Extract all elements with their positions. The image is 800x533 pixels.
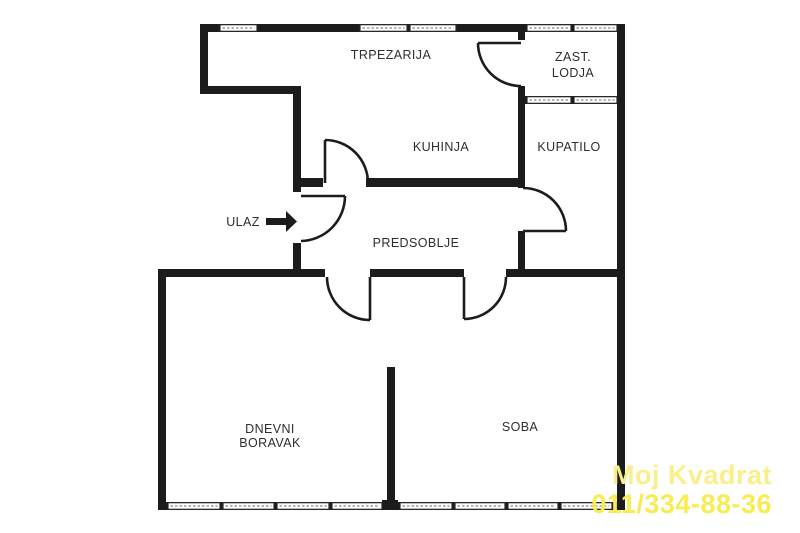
wall-segment xyxy=(387,367,395,510)
entrance-arrow-icon xyxy=(266,211,297,232)
door-dnevni-boravak-swing-arc xyxy=(327,277,370,320)
room-label-zast-lodja-line1: ZAST. xyxy=(555,50,591,64)
room-label-kupatilo: KUPATILO xyxy=(537,140,600,154)
room-label-kuhinja: KUHINJA xyxy=(413,140,470,154)
door-soba-swing-arc xyxy=(464,277,506,319)
wall-segment xyxy=(158,269,325,277)
wall-segment xyxy=(200,24,208,94)
floor-plan-drawing: TRPEZARIJAZAST.LODJAKUHINJAKUPATILOPREDS… xyxy=(0,0,800,533)
room-label-dnevni-boravak-line2: BORAVAK xyxy=(239,436,301,450)
door-lodja-swing-arc xyxy=(478,43,521,86)
room-label-trpezarija: TRPEZARIJA xyxy=(351,48,432,62)
wall-segment xyxy=(158,269,166,510)
room-label-predsoblje: PREDSOBLJE xyxy=(373,236,460,250)
room-label-zast-lodja-line2: LODJA xyxy=(552,66,595,80)
wall-segment xyxy=(506,269,625,277)
wall-segment xyxy=(301,178,323,187)
entrance-layer: ULAZ xyxy=(226,211,297,232)
room-label-soba: SOBA xyxy=(502,420,539,434)
door-kuhinja-swing-arc xyxy=(325,140,368,183)
wall-segment xyxy=(200,86,301,94)
door-kupatilo-swing-arc xyxy=(523,188,566,231)
door-ulaz-swing-arc xyxy=(301,196,345,241)
room-label-dnevni-boravak-line1: DNEVNI xyxy=(245,422,295,436)
wall-segment xyxy=(617,24,625,510)
floor-plan: TRPEZARIJAZAST.LODJAKUHINJAKUPATILOPREDS… xyxy=(0,0,800,533)
entrance-label: ULAZ xyxy=(226,215,260,229)
wall-segment xyxy=(366,178,521,187)
wall-segment xyxy=(382,500,398,510)
wall-segment xyxy=(370,269,464,277)
wall-segment xyxy=(293,86,301,192)
wall-segment xyxy=(518,24,525,40)
